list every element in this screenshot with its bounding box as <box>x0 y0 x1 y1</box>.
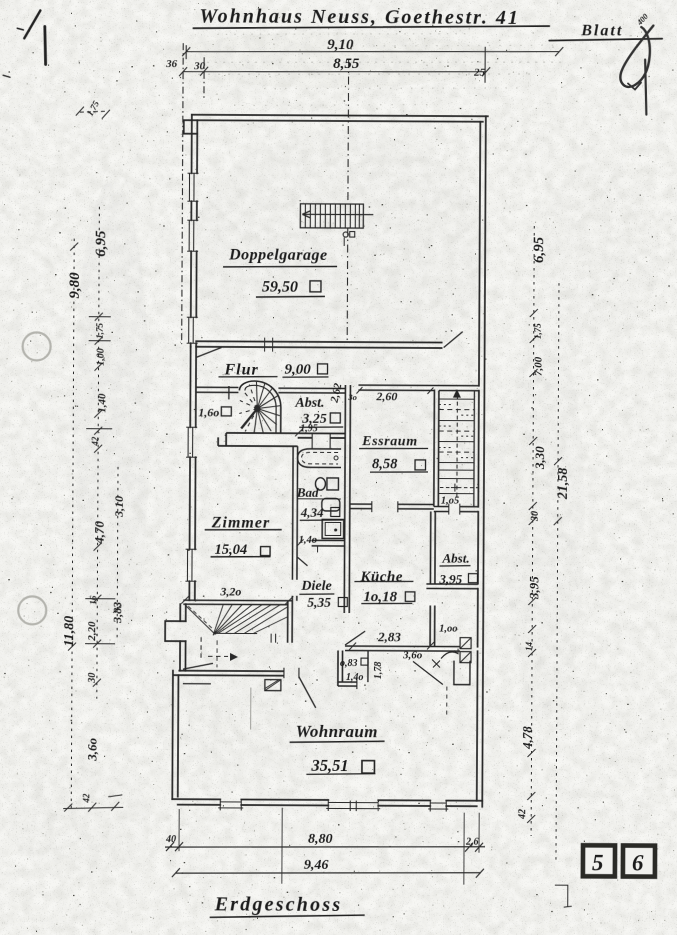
svg-text:Wohnraum: Wohnraum <box>296 722 378 741</box>
svg-text:3,95: 3,95 <box>526 576 541 600</box>
svg-text:6: 6 <box>632 851 644 876</box>
svg-text:3o: 3o <box>347 392 357 402</box>
svg-text:4,70: 4,70 <box>92 520 107 544</box>
svg-text:6,95: 6,95 <box>93 230 109 257</box>
svg-text:2,20: 2,20 <box>86 621 98 642</box>
svg-text:6,95: 6,95 <box>531 236 547 263</box>
svg-text:Küche: Küche <box>359 569 403 585</box>
svg-text:42: 42 <box>90 436 100 447</box>
svg-text:2,83: 2,83 <box>377 629 401 644</box>
svg-text:36: 36 <box>165 58 178 70</box>
svg-text:21,58: 21,58 <box>556 468 571 501</box>
svg-text:2,6: 2,6 <box>465 837 479 848</box>
svg-text:Diele: Diele <box>300 579 331 594</box>
svg-text:16: 16 <box>88 595 98 605</box>
svg-text:1,75: 1,75 <box>95 322 105 338</box>
svg-text:o,83: o,83 <box>340 658 358 669</box>
svg-text:3,83: 3,83 <box>110 602 124 624</box>
svg-text:1,6o: 1,6o <box>198 405 219 419</box>
svg-text:4,78: 4,78 <box>520 726 535 750</box>
svg-text:42: 42 <box>81 793 91 804</box>
svg-text:1,o5: 1,o5 <box>441 496 459 507</box>
svg-text:9,46: 9,46 <box>304 858 329 873</box>
svg-text:8,80: 8,80 <box>308 832 333 847</box>
svg-text:3,2o: 3,2o <box>219 584 241 598</box>
svg-text:42: 42 <box>517 809 528 820</box>
svg-text:Essraum: Essraum <box>361 434 418 449</box>
svg-text:9,10: 9,10 <box>327 37 354 53</box>
svg-text:8,58: 8,58 <box>372 456 398 472</box>
svg-text:59,50: 59,50 <box>262 279 298 296</box>
svg-text:3,6o: 3,6o <box>84 737 99 761</box>
svg-text:Erdgeschoss: Erdgeschoss <box>214 893 343 916</box>
svg-text:Blatt: Blatt <box>580 22 623 39</box>
svg-text:Doppelgarage: Doppelgarage <box>228 246 328 264</box>
svg-text:9,00: 9,00 <box>284 362 311 378</box>
svg-text:1,oo: 1,oo <box>439 624 457 635</box>
svg-text:Bad: Bad <box>296 485 319 500</box>
svg-text:Wohnhaus Neuss, Goethestr. 41: Wohnhaus Neuss, Goethestr. 41 <box>199 5 520 29</box>
svg-text:1,4o: 1,4o <box>299 535 317 546</box>
svg-text:1,4o: 1,4o <box>346 672 364 683</box>
svg-text:5,35: 5,35 <box>307 595 331 610</box>
svg-text:1,75: 1,75 <box>533 323 543 339</box>
svg-text:1,40: 1,40 <box>96 393 108 413</box>
svg-text:30: 30 <box>87 673 98 684</box>
svg-text:25: 25 <box>473 67 486 79</box>
svg-text:15,04: 15,04 <box>215 542 248 558</box>
svg-text:1,95: 1,95 <box>300 423 318 434</box>
svg-text:35,51: 35,51 <box>310 756 348 775</box>
svg-text:11,80: 11,80 <box>62 616 77 647</box>
svg-text:40: 40 <box>165 834 176 845</box>
svg-text:Flur: Flur <box>223 361 258 378</box>
svg-text:1,78: 1,78 <box>373 662 384 680</box>
svg-text:3,10: 3,10 <box>112 496 126 518</box>
svg-text:4,34: 4,34 <box>300 505 324 520</box>
svg-text:3,6o: 3,6o <box>402 649 423 661</box>
svg-text:3,95: 3,95 <box>438 572 462 587</box>
svg-text:30: 30 <box>193 60 206 72</box>
svg-text:8,55: 8,55 <box>333 56 360 72</box>
svg-text:9,80: 9,80 <box>67 272 83 299</box>
svg-text:Abst.: Abst. <box>442 551 470 566</box>
svg-text:7,00: 7,00 <box>532 356 544 376</box>
svg-text:Abst.: Abst. <box>294 396 324 411</box>
svg-text:30: 30 <box>530 511 541 522</box>
svg-text:5: 5 <box>592 850 604 875</box>
svg-text:14: 14 <box>524 641 534 651</box>
svg-text:2,60: 2,60 <box>375 389 397 403</box>
svg-text:1,00: 1,00 <box>96 348 107 366</box>
svg-text:3,30: 3,30 <box>532 446 547 470</box>
